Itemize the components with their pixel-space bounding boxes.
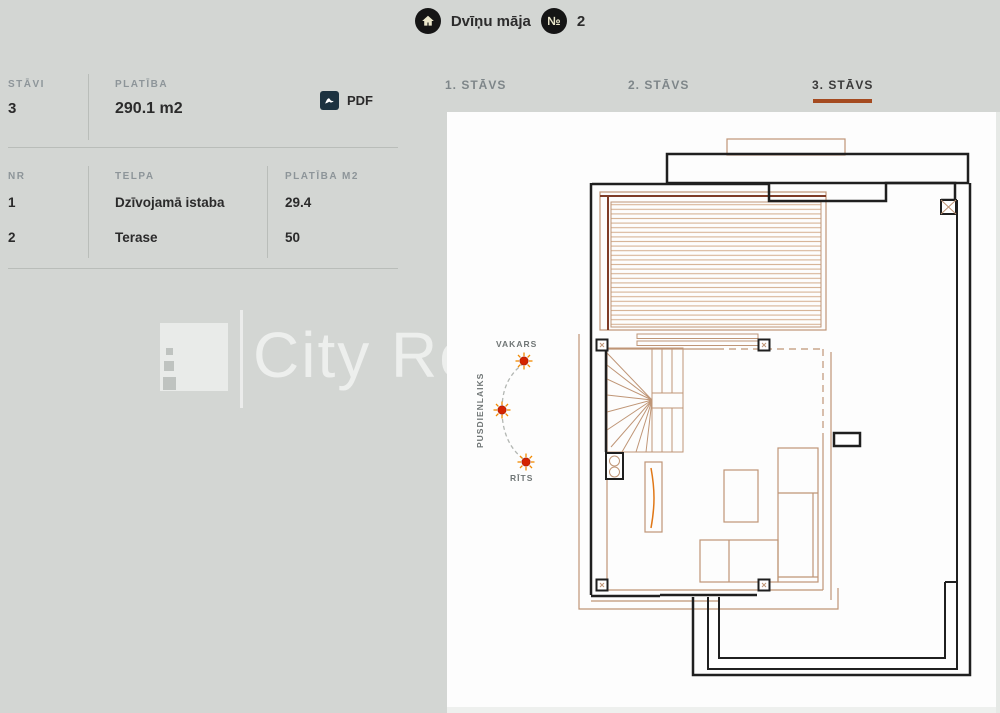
pdf-label: PDF [347, 93, 373, 108]
tab-floor-1[interactable]: 1. STĀVS [445, 78, 506, 92]
cell-telpa: Terase [115, 230, 158, 245]
sun-morning-icon [518, 454, 535, 471]
watermark-divider [240, 310, 243, 408]
section-divider [8, 147, 398, 148]
tab-floor-3[interactable]: 3. STĀVS [812, 78, 873, 92]
col-header-nr: NR [8, 171, 25, 182]
wall-marker [834, 433, 860, 446]
panel-right-strip [996, 112, 1000, 713]
compass-noon-label: PUSDIENLAIKS [475, 373, 485, 448]
page-title: Dvīņu māja [451, 13, 531, 30]
compass-evening-label: VAKARS [496, 339, 537, 349]
cell-nr: 2 [8, 230, 16, 245]
watermark-text: City Re [253, 318, 477, 392]
compass: VAKARS PUSDIENLAIKS RĪTS [475, 339, 537, 483]
table-divider [88, 166, 89, 258]
terrace [600, 192, 826, 346]
corner-sofa [778, 448, 818, 582]
home-badge[interactable] [415, 8, 441, 34]
floors-value: 3 [8, 100, 16, 117]
pdf-button[interactable]: PDF [320, 91, 373, 110]
cell-platiba: 50 [285, 230, 300, 245]
header: Dvīņu māja № 2 [0, 0, 1000, 42]
table-divider [267, 166, 268, 258]
house-number: 2 [577, 13, 585, 30]
sun-noon-icon [494, 402, 511, 419]
home-icon [421, 14, 435, 28]
floors-label: STĀVI [8, 79, 45, 90]
section-divider [8, 268, 398, 269]
floor-plan: VAKARS PUSDIENLAIKS RĪTS [447, 112, 996, 707]
numero-icon: № [547, 14, 560, 28]
stove [606, 453, 623, 479]
col-header-platiba: PLATĪBA M2 [285, 171, 359, 182]
tab-floor-2[interactable]: 2. STĀVS [628, 78, 689, 92]
pdf-icon [320, 91, 339, 110]
sun-evening-icon [516, 353, 533, 370]
area-label: PLATĪBA [115, 79, 168, 90]
cell-nr: 1 [8, 195, 16, 210]
col-header-telpa: TELPA [115, 171, 155, 182]
window-symbol [941, 200, 956, 214]
number-badge: № [541, 8, 567, 34]
cabinet [645, 462, 662, 532]
sofa [700, 540, 778, 582]
area-value: 290.1 m2 [115, 100, 183, 118]
cell-platiba: 29.4 [285, 195, 311, 210]
staircase [607, 348, 683, 452]
watermark-logo [160, 323, 228, 391]
summary-divider [88, 74, 89, 140]
coffee-table [724, 470, 758, 522]
panel-bottom-strip [447, 707, 1000, 713]
cell-telpa: Dzīvojamā istaba [115, 195, 225, 210]
compass-morning-label: RĪTS [510, 473, 533, 483]
